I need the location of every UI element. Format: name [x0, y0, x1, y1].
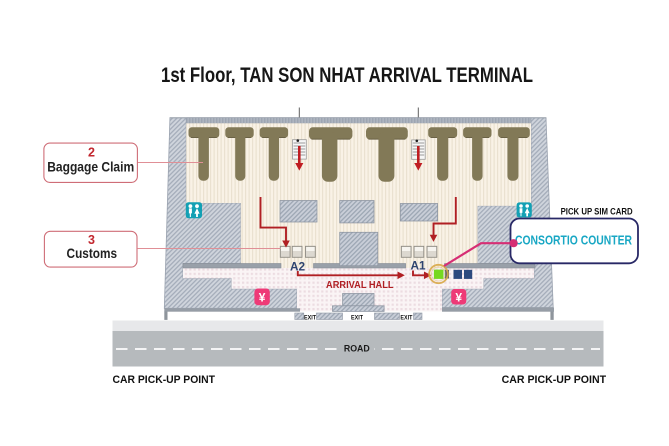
- svg-text:3: 3: [88, 233, 95, 247]
- svg-text:ROAD: ROAD: [344, 343, 370, 353]
- svg-text:CONSORTIO COUNTER: CONSORTIO COUNTER: [515, 233, 632, 248]
- svg-text:PICK UP SIM CARD: PICK UP SIM CARD: [561, 206, 633, 216]
- svg-text:2: 2: [88, 145, 95, 159]
- svg-text:EXIT: EXIT: [351, 315, 363, 321]
- svg-text:¥: ¥: [455, 290, 462, 304]
- svg-text:Customs: Customs: [67, 246, 118, 261]
- svg-text:EXIT: EXIT: [304, 315, 316, 321]
- svg-text:CAR PICK-UP POINT: CAR PICK-UP POINT: [502, 374, 607, 386]
- svg-text:Baggage Claim: Baggage Claim: [47, 160, 134, 175]
- svg-text:ARRIVAL HALL: ARRIVAL HALL: [326, 280, 394, 291]
- svg-text:EXIT: EXIT: [400, 315, 412, 321]
- svg-text:A1: A1: [410, 258, 426, 272]
- svg-text:1st Floor, TAN SON NHAT ARRIVA: 1st Floor, TAN SON NHAT ARRIVAL TERMINAL: [161, 63, 533, 87]
- svg-text:CAR PICK-UP POINT: CAR PICK-UP POINT: [113, 374, 216, 386]
- svg-text:¥: ¥: [259, 291, 266, 305]
